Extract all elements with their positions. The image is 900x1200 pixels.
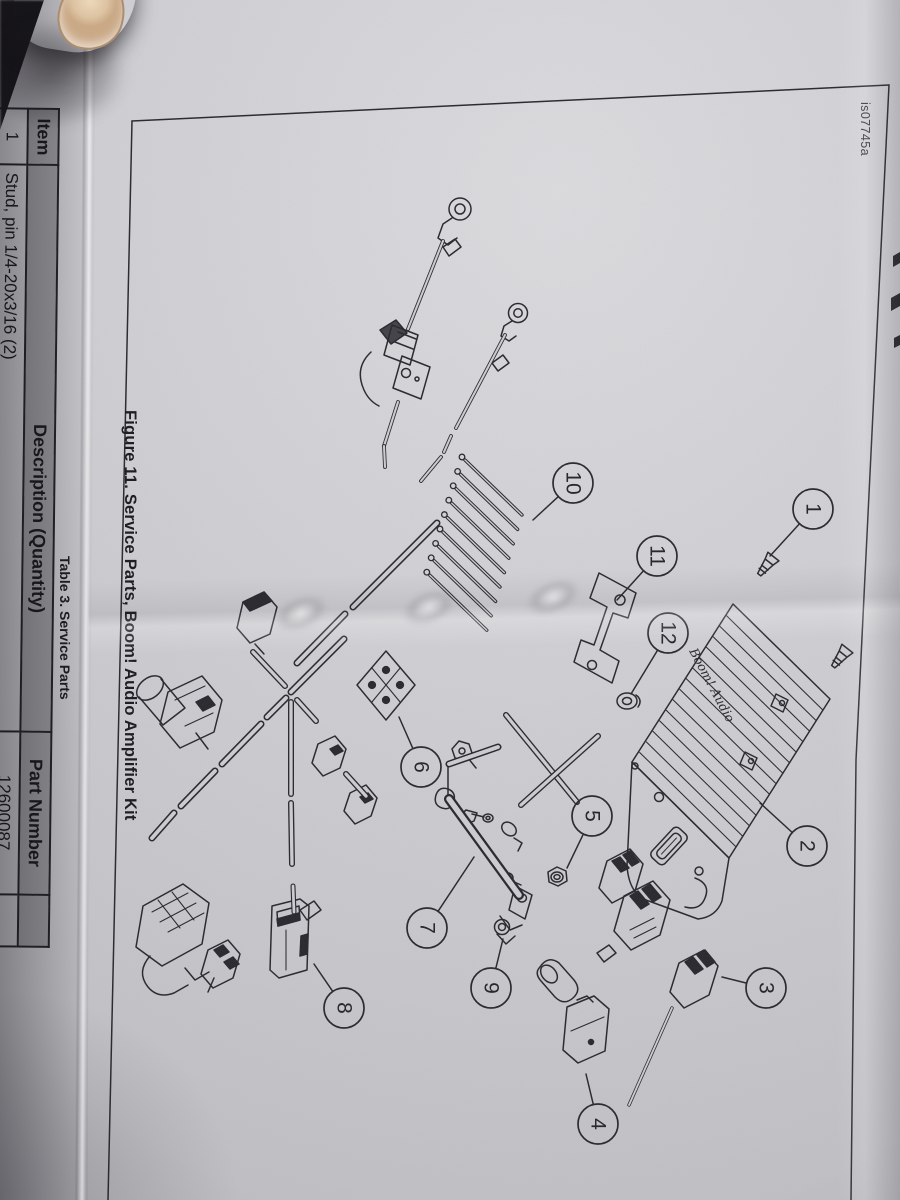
photo-of-service-manual-page: Item Description (Quantity) Part Number … (0, 0, 900, 1200)
figure-id-label: is07745a (858, 102, 872, 156)
table-caption: Table 3. Service Parts (57, 556, 73, 700)
figure-caption: Figure 11. Service Parts, Boom! Audio Am… (120, 410, 139, 821)
